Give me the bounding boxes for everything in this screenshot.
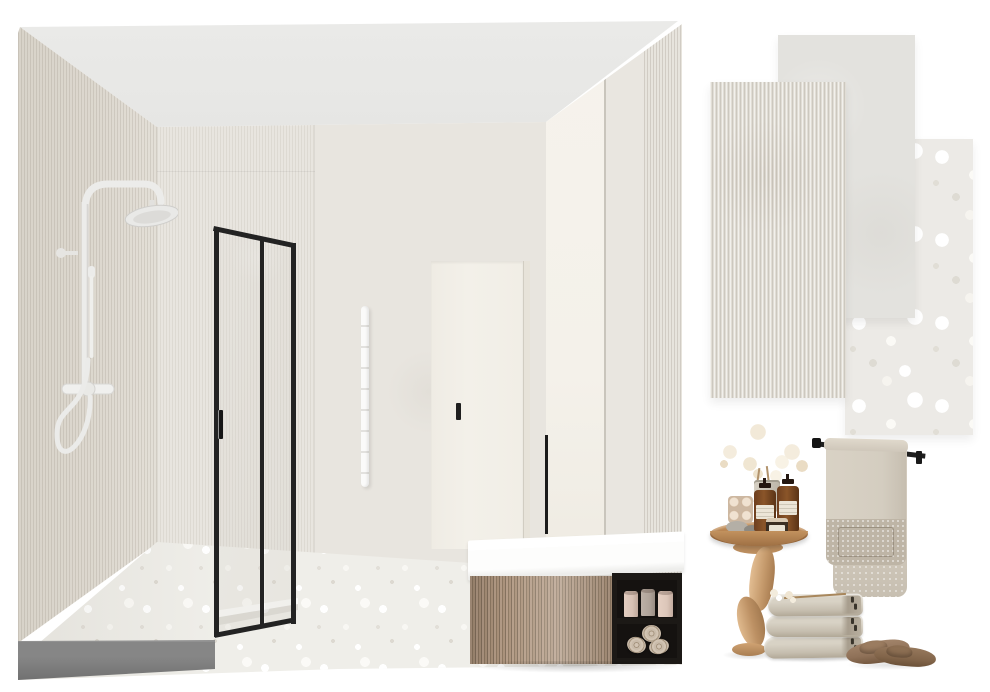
glass-frame-right-stile (291, 243, 296, 624)
stick-faucet (545, 435, 548, 534)
bathroom-render (18, 21, 682, 682)
towel-fold-over-rail (824, 438, 908, 452)
towel-radiator (361, 306, 369, 487)
flush-door (431, 261, 523, 549)
table-pedestal-foot (732, 643, 766, 656)
ceramic-vessel (624, 591, 638, 617)
folded-towel (766, 615, 863, 637)
vessel-opening (641, 589, 655, 593)
vanity-floor-shadow (470, 661, 682, 673)
shelf-compartment-top (617, 580, 677, 618)
bottle-label (779, 501, 797, 515)
table-front-rim (710, 531, 808, 546)
dried-sprig-blooms (768, 585, 798, 605)
ceramic-vessel (641, 589, 655, 616)
bubble-candle (728, 496, 753, 523)
vanity-sheen (470, 576, 612, 664)
vessel-opening (624, 591, 638, 595)
vanity-open-shelf (612, 573, 682, 664)
door-jamb (523, 261, 530, 550)
ceramic-vessel (658, 591, 673, 617)
pump-tube (763, 478, 766, 484)
fold-gap (851, 618, 854, 624)
rain-shower-set (48, 166, 178, 486)
shower-door-handle (218, 410, 223, 439)
pump-tube (786, 474, 789, 480)
cream-right-wall (546, 21, 682, 606)
moodboard-page: { "board": { "title": "bathroom-interior… (0, 0, 990, 692)
ribbed-tile-swatch (710, 82, 846, 398)
slipper-strap (886, 644, 913, 658)
fold-gap (854, 604, 857, 610)
glass-frame-middle-stile (260, 240, 264, 628)
rail-bracket (916, 451, 922, 464)
vessel-opening (658, 591, 673, 595)
right-wall-stone-band (606, 21, 644, 606)
bottle-label (756, 505, 774, 519)
hanging-towel (826, 443, 906, 565)
fold-gap (851, 597, 854, 603)
tile-seam-vertical (314, 125, 315, 555)
fold-gap (854, 625, 857, 631)
right-wall-ribbed-band (644, 21, 682, 606)
towel-stitch-border (838, 527, 894, 557)
door-handle (456, 403, 461, 420)
rail-end-cap (812, 438, 821, 448)
tile-seam-horizontal (157, 171, 315, 172)
fold-gap (851, 638, 854, 644)
